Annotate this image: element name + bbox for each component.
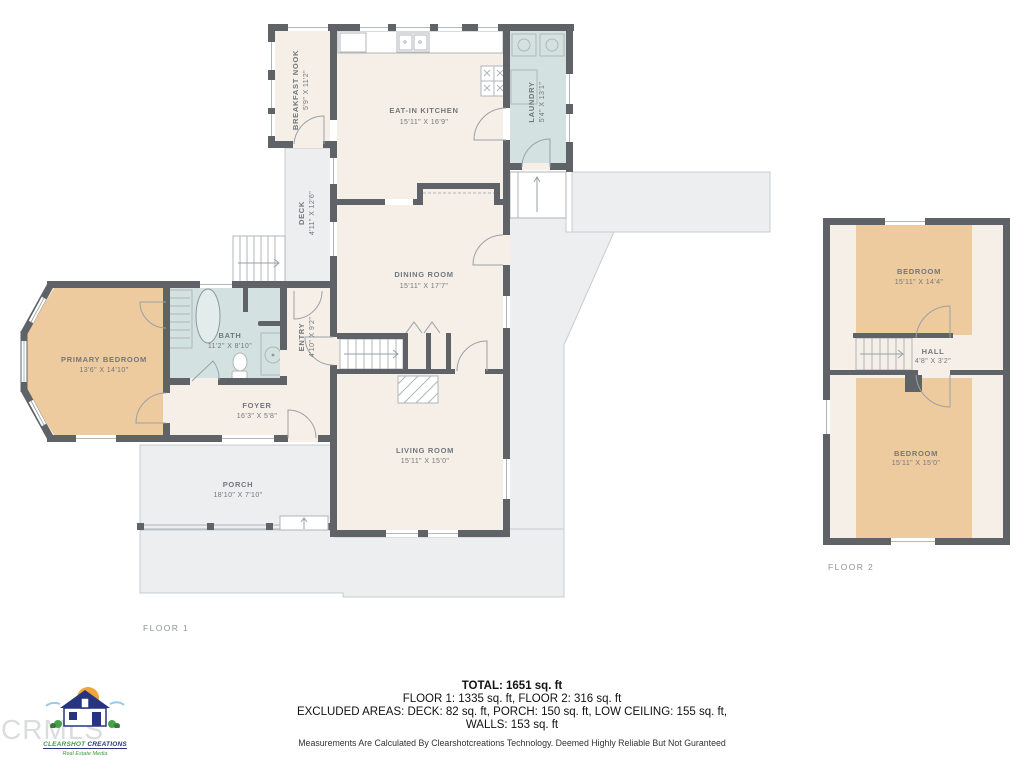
room-dims: 4'11" X 12'6" <box>309 191 316 235</box>
room-label: PORCH <box>223 480 254 489</box>
room-dims: 13'6" X 14'10" <box>79 367 128 374</box>
toilet <box>232 353 247 379</box>
logo-wordmark: CLEARSHOT CREATIONS <box>43 741 127 749</box>
floorplan-page: BREAKFAST NOOK 5'9" X 11'2" EAT-IN KITCH… <box>0 0 1024 768</box>
room-label: DINING ROOM <box>394 270 453 279</box>
room-label: HALL <box>922 347 945 356</box>
room-label: EAT-IN KITCHEN <box>389 106 458 115</box>
floor2-plan: BEDROOM 15'11" X 14'4" HALL 4'8" X 3'2" … <box>823 218 1010 572</box>
room-dims: 15'11" X 16'9" <box>400 119 449 126</box>
room-dims: 15'11" X 15'0" <box>401 458 450 465</box>
fireplace <box>398 376 438 403</box>
floor-areas: FLOOR 1: 1335 sq. ft, FLOOR 2: 316 sq. f… <box>0 693 1024 706</box>
room-dims: 18'10" X 7'10" <box>213 492 262 499</box>
room-label: FOYER <box>242 401 271 410</box>
room-label: ENTRY <box>297 323 306 352</box>
kitchen-floor <box>337 31 503 199</box>
disclaimer: Measurements Are Calculated By Clearshot… <box>0 738 1024 748</box>
back-stoop <box>510 172 566 218</box>
room-dims: 16'3" X 5'8" <box>237 413 278 420</box>
room-dims: 4'8" X 3'2" <box>915 358 951 365</box>
room-label: BEDROOM <box>894 449 938 458</box>
room-label: BEDROOM <box>897 267 941 276</box>
deck-area <box>233 148 337 290</box>
room-label: LAUNDRY <box>527 81 536 122</box>
room-dims: 4'10" X 9'2" <box>309 317 316 358</box>
floor1-caption: FLOOR 1 <box>143 623 189 633</box>
room-dims: 5'9" X 11'2" <box>303 70 310 110</box>
clearshot-logo: CLEARSHOT CREATIONS Real Estate Media <box>40 684 130 757</box>
room-label: LIVING ROOM <box>396 446 454 455</box>
main-stairs <box>340 339 403 369</box>
chimney <box>905 375 922 392</box>
bathtub <box>196 289 220 343</box>
floor1-plan: BREAKFAST NOOK 5'9" X 11'2" EAT-IN KITCH… <box>24 24 770 633</box>
excluded-areas-1: EXCLUDED AREAS: DECK: 82 sq. ft, PORCH: … <box>0 706 1024 719</box>
room-label: BREAKFAST NOOK <box>291 50 300 130</box>
floorplan-drawing: BREAKFAST NOOK 5'9" X 11'2" EAT-IN KITCH… <box>0 0 1024 768</box>
room-dims: 15'11" X 17'7" <box>400 283 449 290</box>
area-summary: TOTAL: 1651 sq. ft FLOOR 1: 1335 sq. ft,… <box>0 680 1024 748</box>
floor2-stairs <box>856 338 912 370</box>
laundry-floor <box>510 31 566 163</box>
excluded-areas-2: WALLS: 153 sq. ft <box>0 719 1024 732</box>
porch-steps <box>280 516 328 530</box>
logo-tagline: Real Estate Media <box>40 751 130 757</box>
room-dims: 15'11" X 14'4" <box>895 279 944 286</box>
room-label: DECK <box>297 201 306 225</box>
room-dims: 5'4" X 13'1" <box>539 82 546 123</box>
room-dims: 15'11" X 15'0" <box>892 460 941 467</box>
floor2-caption: FLOOR 2 <box>828 562 874 572</box>
foyer-floor <box>170 385 330 435</box>
bedroom2-floor <box>856 378 972 538</box>
room-label: PRIMARY BEDROOM <box>61 355 147 364</box>
room-label: BATH <box>218 331 241 340</box>
logo-house-icon <box>40 684 130 728</box>
room-dims: 11'2" X 8'10" <box>208 343 252 350</box>
total-area: TOTAL: 1651 sq. ft <box>0 680 1024 693</box>
side-deck-area <box>572 172 770 232</box>
